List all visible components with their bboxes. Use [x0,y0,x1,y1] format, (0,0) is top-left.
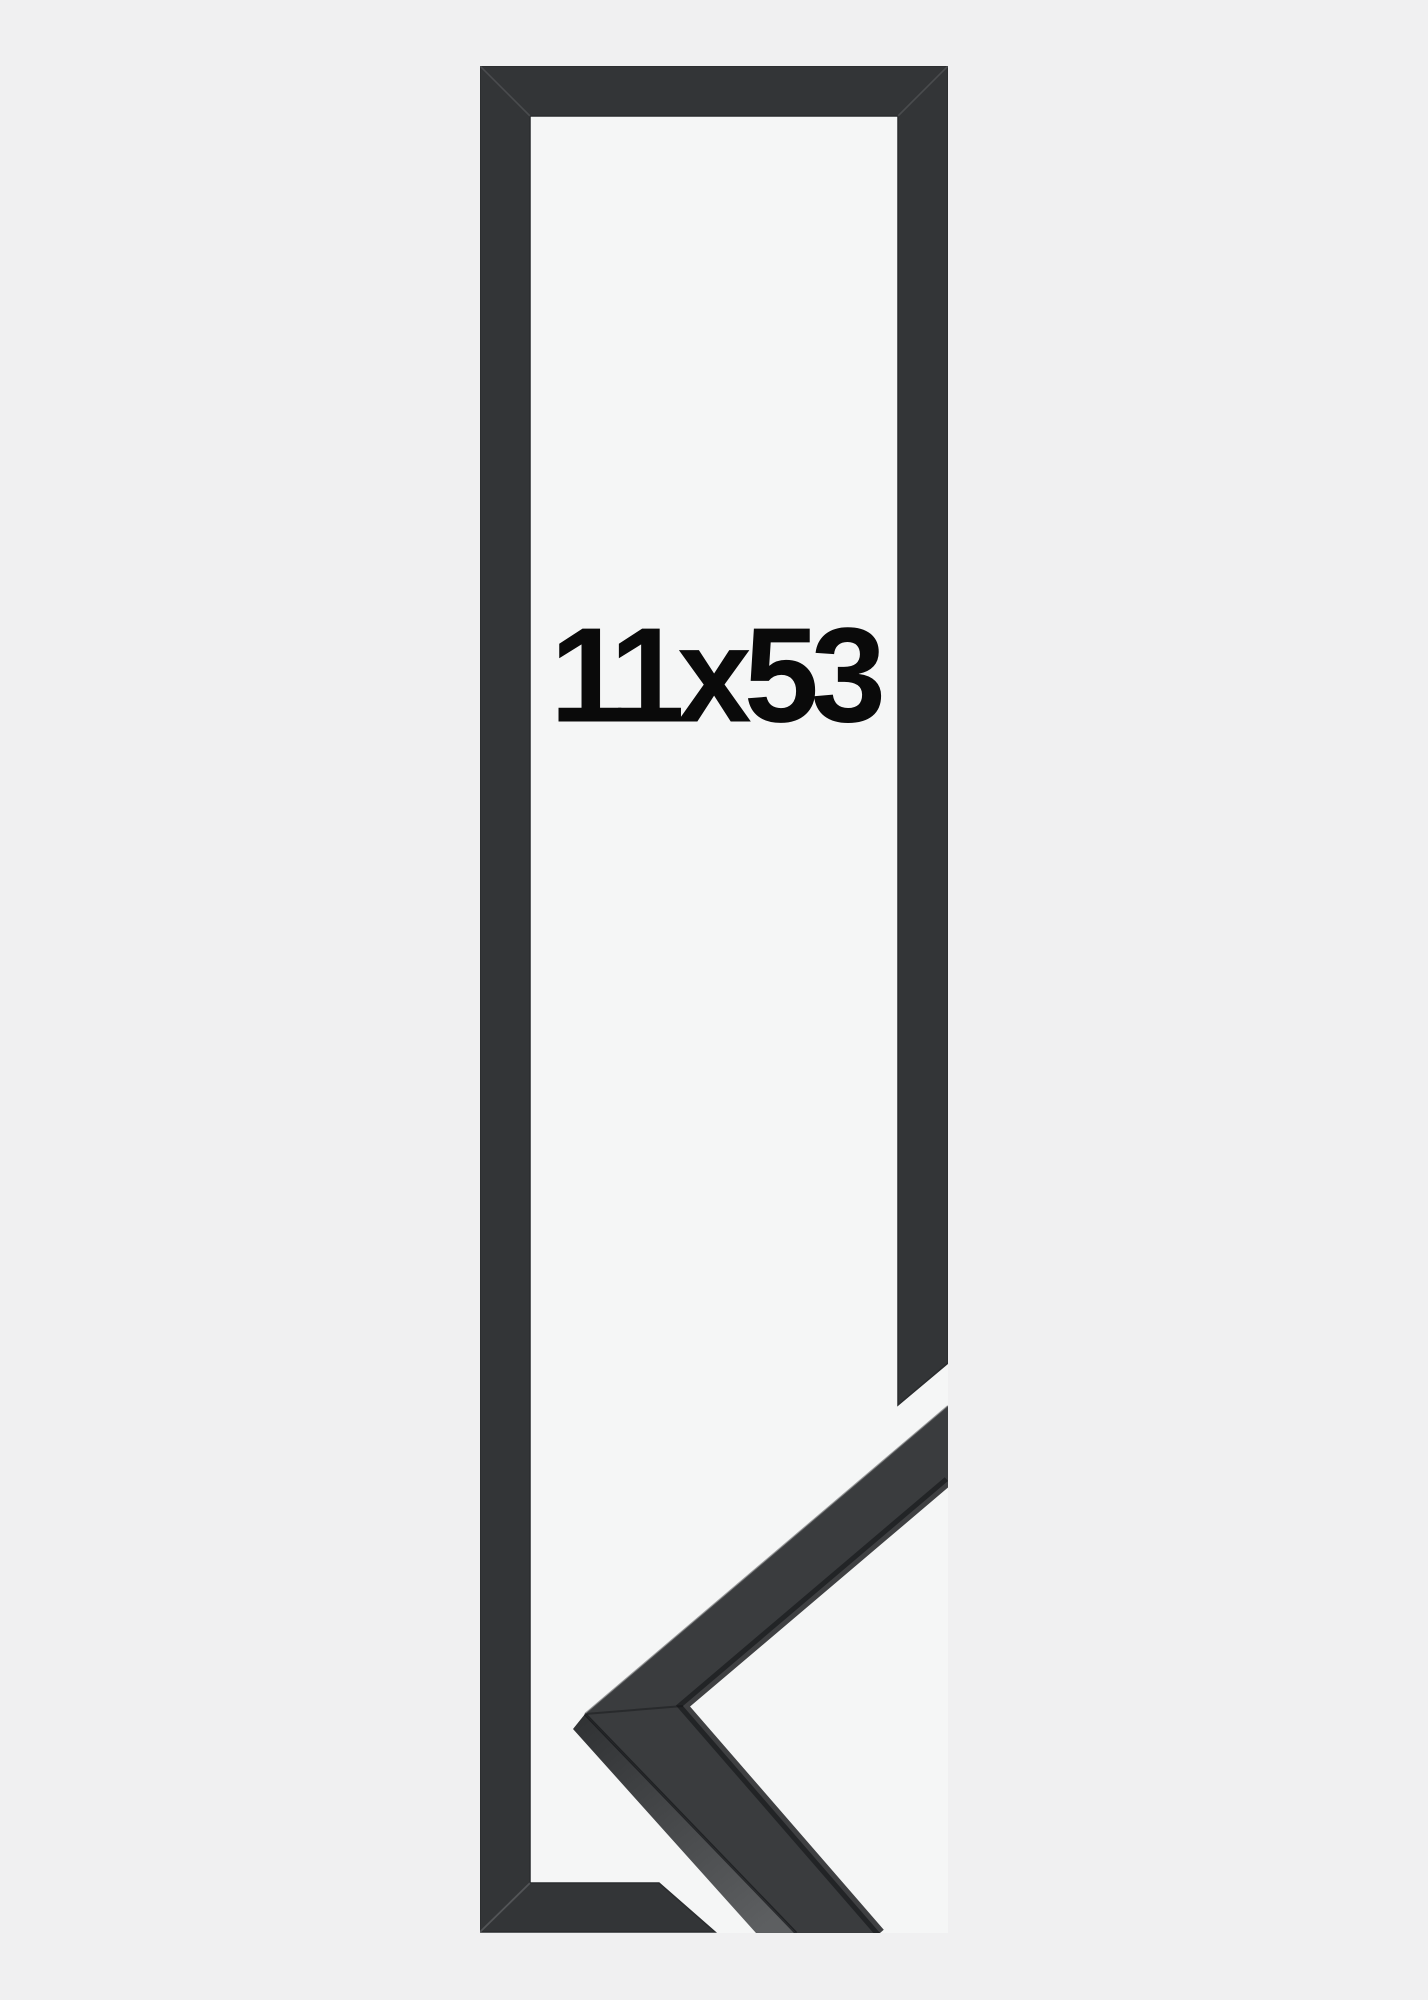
frame-artwork [480,66,948,1933]
corner-sample-face [585,1406,948,1933]
size-label: 11x53 [480,608,948,743]
corner-sample-highlight [585,1406,948,1714]
product-image: 11x53 [480,66,948,1933]
